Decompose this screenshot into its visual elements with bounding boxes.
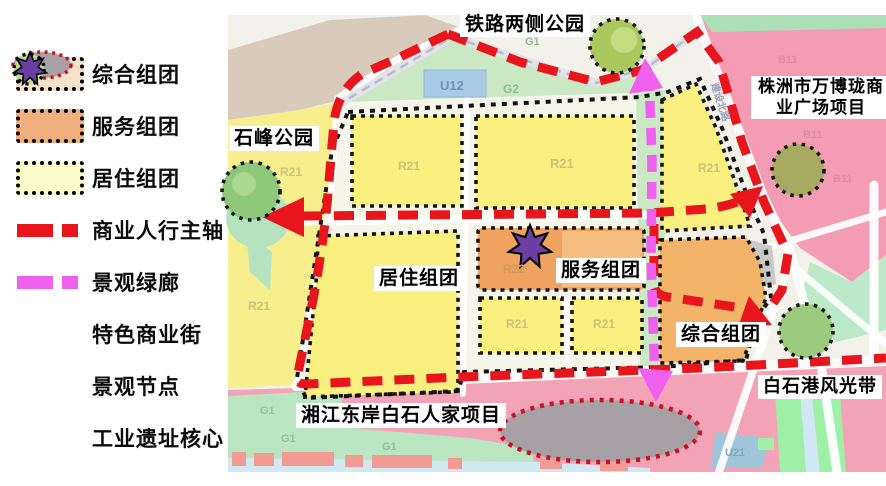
zone-label: U12 bbox=[440, 78, 464, 93]
residential-swatch-icon bbox=[8, 161, 92, 195]
zone-label: U21 bbox=[725, 447, 745, 459]
label-residential-cluster: 居住组团 bbox=[374, 266, 464, 291]
legend-label: 综合组团 bbox=[92, 59, 180, 89]
zone-label: R21 bbox=[593, 317, 615, 331]
legend-label: 工业遗址核心 bbox=[92, 423, 224, 453]
zone-g1-chip bbox=[758, 438, 774, 450]
legend-item-commercial-street: 特色商业街 bbox=[8, 308, 230, 360]
zone-label: R21 bbox=[698, 161, 720, 175]
legend: 综合组团 服务组团 居住组团 商业人行主轴 景观绿廊 特色商业街 bbox=[8, 48, 230, 464]
zone-label: R21 bbox=[398, 159, 420, 173]
zone-label: R21 bbox=[550, 156, 574, 171]
node-baishigang bbox=[779, 304, 833, 358]
magenta-dash-icon bbox=[8, 276, 92, 289]
node-highlight-1 bbox=[611, 27, 637, 53]
zone-label: R22 bbox=[503, 262, 525, 276]
zone-label: B11 bbox=[833, 173, 853, 185]
legend-label: 景观绿廊 bbox=[92, 267, 180, 297]
red-dash-icon bbox=[8, 224, 92, 237]
planning-map-figure: U12G1G2R21R21R21R21R21R22R21R21B11B11B11… bbox=[0, 0, 886, 486]
label-wanbolong-line2: 业广场项目 bbox=[776, 98, 866, 117]
legend-item-industrial-heritage: 工业遗址核心 bbox=[8, 412, 230, 464]
legend-item-residential: 居住组团 bbox=[8, 152, 230, 204]
zone-label: G1 bbox=[281, 433, 296, 445]
zone-label: B11 bbox=[803, 129, 823, 141]
label-baishigang-belt: 白石港风光带 bbox=[758, 375, 882, 399]
label-xiangjiang-project: 湘江东岸白石人家项目 bbox=[296, 403, 506, 428]
legend-item-landscape-node: 景观节点 bbox=[8, 360, 230, 412]
legend-item-main-axis: 商业人行主轴 bbox=[8, 204, 230, 256]
legend-item-green-corridor: 景观绿廊 bbox=[8, 256, 230, 308]
legend-label: 服务组团 bbox=[92, 111, 180, 141]
zone-label: G1 bbox=[525, 36, 540, 48]
label-service-cluster: 服务组团 bbox=[556, 258, 646, 283]
legend-label: 景观节点 bbox=[92, 371, 180, 401]
commercial-street-ellipse bbox=[500, 400, 700, 462]
label-wanbolong-line1: 株洲市万博珑商 bbox=[758, 77, 884, 96]
service-swatch-icon bbox=[8, 109, 92, 143]
block-residential-main bbox=[305, 231, 458, 397]
zone-label: G1 bbox=[260, 405, 275, 417]
zone-label: G2 bbox=[503, 82, 519, 96]
label-shifeng-park: 石峰公园 bbox=[229, 126, 319, 151]
label-railway-park: 铁路两侧公园 bbox=[460, 12, 590, 37]
zone-label: R21 bbox=[248, 299, 270, 313]
label-wanbolong-project: 株洲市万博珑商 业广场项目 bbox=[751, 76, 886, 119]
zone-label: R21 bbox=[506, 317, 528, 331]
node-highlight-2 bbox=[232, 172, 256, 196]
zone-label: B11 bbox=[778, 54, 798, 66]
node-wanbolong bbox=[772, 144, 824, 196]
label-comprehensive-cluster: 综合组团 bbox=[676, 322, 766, 347]
legend-item-service: 服务组团 bbox=[8, 100, 230, 152]
zone-label: G1 bbox=[382, 441, 397, 453]
legend-label: 商业人行主轴 bbox=[92, 215, 224, 245]
legend-label: 特色商业街 bbox=[92, 319, 202, 349]
legend-label: 居住组团 bbox=[92, 163, 180, 193]
zone-label: R21 bbox=[280, 165, 302, 179]
